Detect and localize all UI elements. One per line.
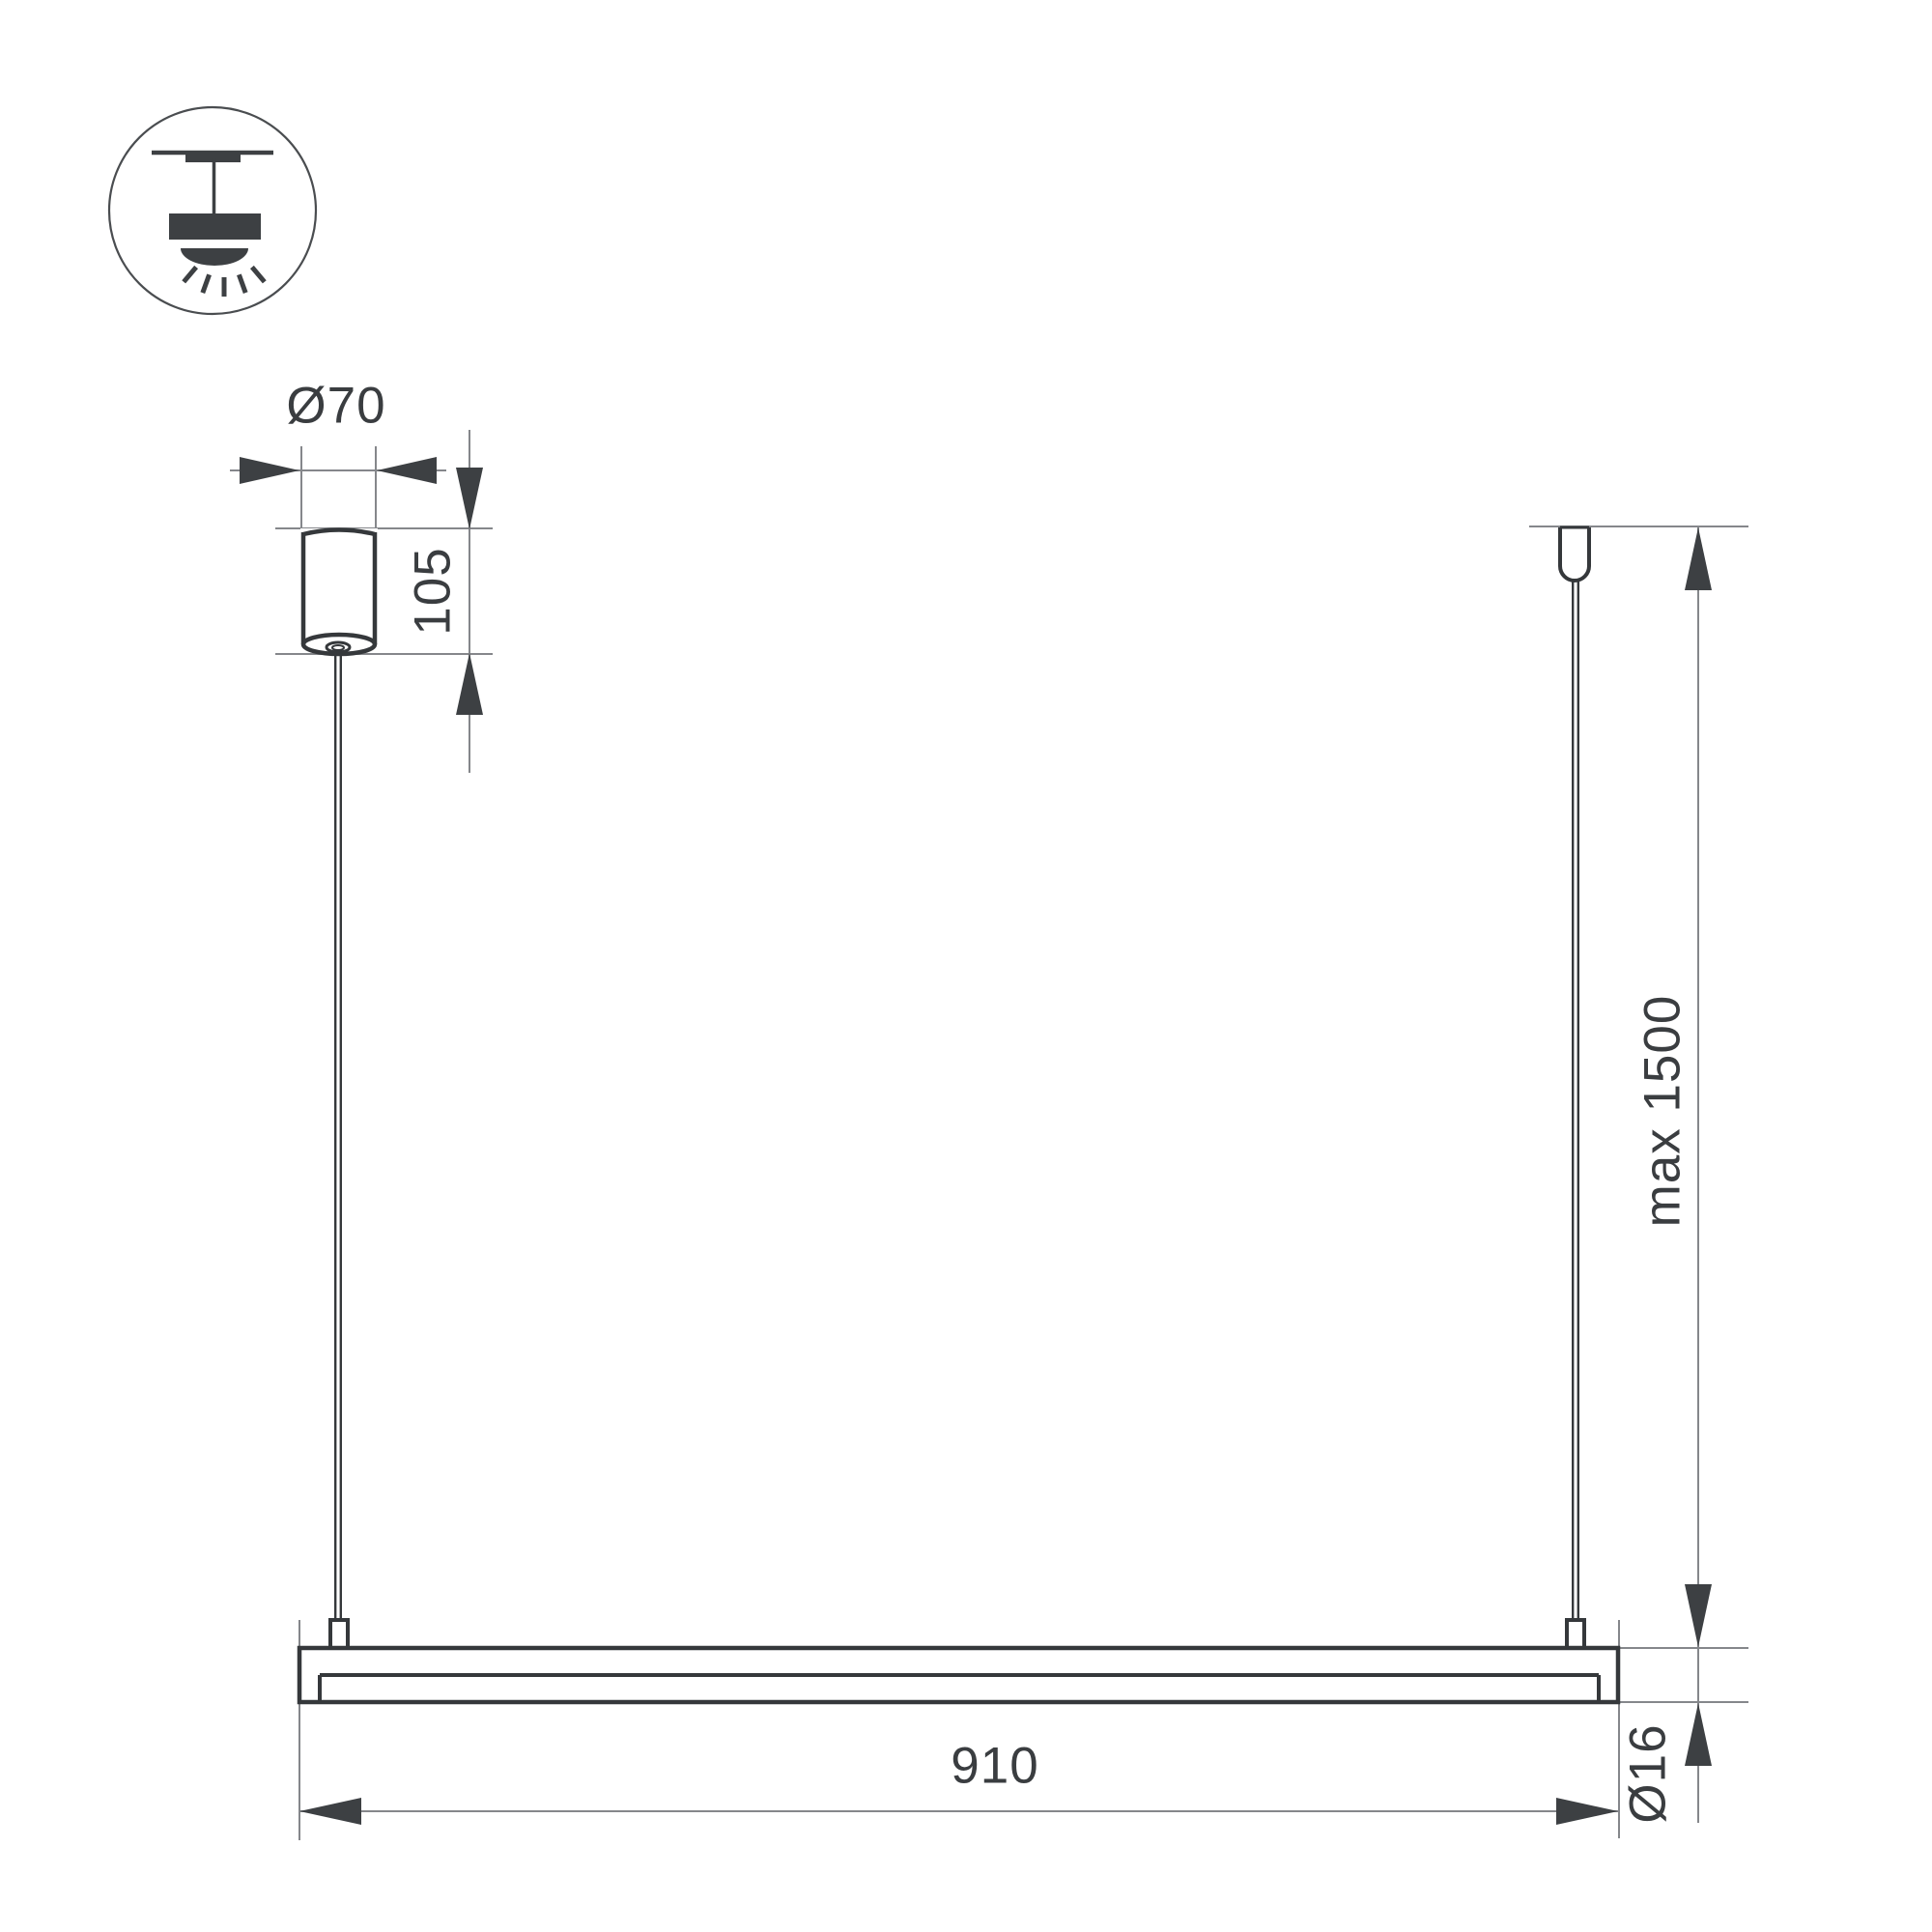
dimension-drawing-svg: Ø70 105 max 1500 910 Ø16 [0,0,1932,1932]
label-fixture-diameter: Ø16 [1620,1723,1677,1823]
arrow-canopy-height-bottom [456,653,483,715]
icon-lamp-body [169,213,261,240]
label-canopy-height: 105 [405,547,462,635]
ceiling-canopy [300,528,378,654]
arrow-bar-dia-bottom [1685,1703,1712,1766]
arrow-bar-length-left [299,1798,361,1825]
label-canopy-diameter: Ø70 [286,378,385,435]
canopy-body-fill [300,528,378,646]
label-max-suspension: max 1500 [1634,995,1691,1228]
icon-ray [203,274,210,293]
dimension-arrows [240,457,1712,1825]
arrow-suspension-bottom [1685,1584,1712,1647]
bar-wire-fitting-right [1567,1620,1584,1648]
arrow-bar-length-right [1556,1798,1618,1825]
icon-ray [184,268,196,282]
light-bar [299,1620,1618,1702]
label-fixture-length: 910 [951,1738,1038,1795]
construction-lines [230,430,1748,1840]
icon-light-rays [184,268,265,298]
arrow-canopy-dia-left [240,457,299,484]
dimension-labels: Ø70 105 max 1500 910 Ø16 [286,378,1690,1824]
canopy-cord-grip-inner [332,645,344,650]
right-suspension [1557,527,1592,1621]
arrow-canopy-dia-right [377,457,437,484]
icon-lamp-dome [181,248,248,266]
arrow-canopy-height-top [456,468,483,529]
drawing-canvas: Ø70 105 max 1500 910 Ø16 [0,0,1932,1932]
suspension-wire-left [335,651,341,1621]
icon-ray [239,274,245,293]
icon-ray [252,268,265,282]
arrow-suspension-top [1685,527,1712,590]
suspension-wire-right [1573,580,1578,1621]
ceiling-fitting [1560,527,1589,581]
pendant-light-icon [109,107,316,314]
bar-wire-fitting-left [330,1620,348,1648]
